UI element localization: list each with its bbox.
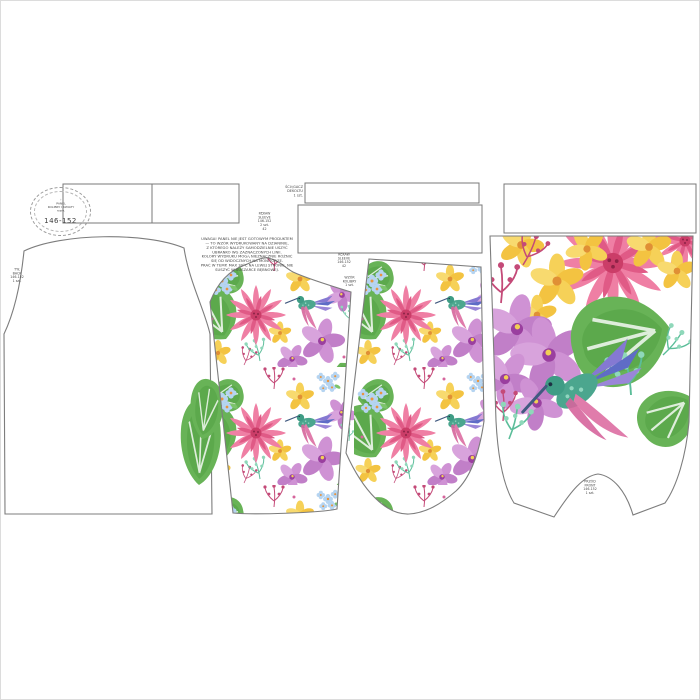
waistband-strip-piece xyxy=(298,205,482,253)
front-band-strip-piece xyxy=(504,184,696,233)
stamp-size-label: 146-152 xyxy=(44,217,77,225)
stamp-text: PANELKOLIBRY I KWIATYrozm. xyxy=(38,202,83,213)
front-piece-note: PRZÓDFRONT146-1521 szt. xyxy=(577,480,603,495)
pattern-sheet-artwork xyxy=(1,1,700,700)
pattern-sheet: ◦ PANELKOLIBRY I KWIATYrozm. 146-152 ŚCI… xyxy=(0,0,700,700)
pattern-piece-sleeve-b xyxy=(341,249,491,524)
neckband-note: ŚCIĄGACZDEKOLTU1 szt. xyxy=(273,185,303,197)
leg-note: RĘKAWSLEEVE146-15242 xyxy=(331,253,357,268)
care-note: UWAGA! PANEL NIE JEST GOTOWYM PRODUKTEM … xyxy=(200,237,294,272)
back-piece-note: TYŁBACK146-1521 szt. xyxy=(3,268,31,283)
piece-note: WZÓRKOLIBRY1 szt. xyxy=(342,276,357,287)
size-stamp: ◦ PANELKOLIBRY I KWIATYrozm. 146-152 xyxy=(30,187,91,236)
pattern-piece-back xyxy=(4,237,212,514)
pattern-piece-front-bodysuit xyxy=(463,208,700,522)
cuff-strip-piece xyxy=(305,183,479,203)
pattern-piece-sleeve-a xyxy=(201,249,361,524)
sleeve-note: RĘKAWSLEEVE146-1522 szt.42 xyxy=(246,212,283,231)
